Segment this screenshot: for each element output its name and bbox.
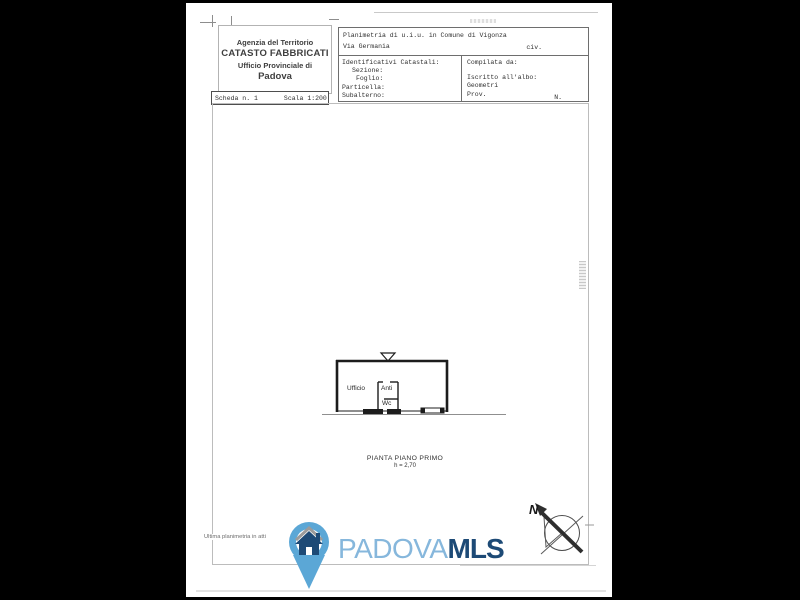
field-subalterno: Subalterno:: [342, 92, 461, 100]
compilata-cell: Compilata da: Iscritto all'albo: Geometr…: [462, 56, 588, 101]
window-jamb-left: [421, 408, 425, 413]
room-label-wc: Wc: [382, 400, 391, 407]
plan-caption: PIANTA PIANO PRIMO h = 2,70: [325, 455, 485, 469]
agency-office-title: CATASTO FABBRICATI: [221, 48, 328, 60]
cadastral-form-box: Planimetria di u.i.u. in Comune di Vigon…: [338, 27, 589, 102]
plan-caption-title: PIANTA PIANO PRIMO: [325, 455, 485, 462]
plan-caption-height: h = 2,70: [325, 463, 485, 469]
threshold-block-left: [363, 409, 383, 414]
field-particella: Particella:: [342, 84, 461, 92]
scanned-document-page: Agenzia del Territorio CATASTO FABBRICAT…: [186, 3, 612, 597]
form-fields-row: Identificativi Catastali: Sezione: Fogli…: [339, 56, 588, 101]
scan-artifact-line-top: [374, 12, 598, 13]
footer-note: Ultima planimetria in atti: [202, 534, 268, 540]
civ-label: civ.: [526, 44, 542, 51]
agency-name: Agenzia del Territorio: [237, 37, 314, 48]
scan-artifact-line-logo: [460, 565, 596, 566]
logo-text-mls: MLS: [448, 533, 504, 564]
threshold-block-right: [387, 409, 401, 414]
pin-tail: [293, 555, 325, 589]
screenshot-root: { "page": { "background_color": "#000000…: [0, 0, 800, 600]
prov-label: Prov.: [467, 91, 588, 98]
sheet-scale: Scala 1:200: [284, 95, 327, 102]
crop-mark: [329, 19, 339, 20]
field-foglio: Foglio:: [342, 75, 461, 83]
crop-mark: [231, 16, 232, 25]
logo-text: PADOVAMLS: [338, 533, 504, 565]
floor-plan-drawing: [320, 348, 512, 420]
n-label: N.: [554, 94, 562, 101]
window-jamb-right: [440, 408, 444, 413]
form-location-row: Planimetria di u.i.u. in Comune di Vigon…: [339, 28, 588, 56]
padovamls-logo: PADOVAMLS: [286, 517, 586, 597]
albo-value: Geometri: [467, 82, 588, 90]
agency-header-box: Agenzia del Territorio CATASTO FABBRICAT…: [218, 25, 332, 94]
identificativi-title: Identificativi Catastali:: [342, 59, 461, 67]
identificativi-cell: Identificativi Catastali: Sezione: Fogli…: [339, 56, 462, 101]
crop-mark: [212, 15, 213, 27]
house-door: [306, 547, 312, 555]
map-pin-house-icon: [286, 519, 332, 593]
agency-city: Padova: [258, 71, 292, 83]
field-sezione: Sezione:: [342, 67, 461, 75]
room-label-ufficio: Ufficio: [347, 385, 365, 392]
street-name: Via Germania: [343, 40, 584, 53]
compilata-title: Compilata da:: [467, 59, 588, 67]
north-label: N: [529, 502, 539, 517]
albo-label: Iscritto all'albo:: [467, 74, 588, 82]
sheet-number: Scheda n. 1: [215, 95, 258, 102]
planimetria-title: Planimetria di u.i.u. in Comune di Vigon…: [343, 31, 584, 40]
room-label-anti: Anti: [381, 385, 392, 392]
logo-text-padova: PADOVA: [338, 533, 448, 564]
scan-smudge: [470, 19, 496, 23]
agency-office-subtitle: Ufficio Provinciale di: [238, 60, 312, 71]
crop-mark: [200, 22, 216, 23]
